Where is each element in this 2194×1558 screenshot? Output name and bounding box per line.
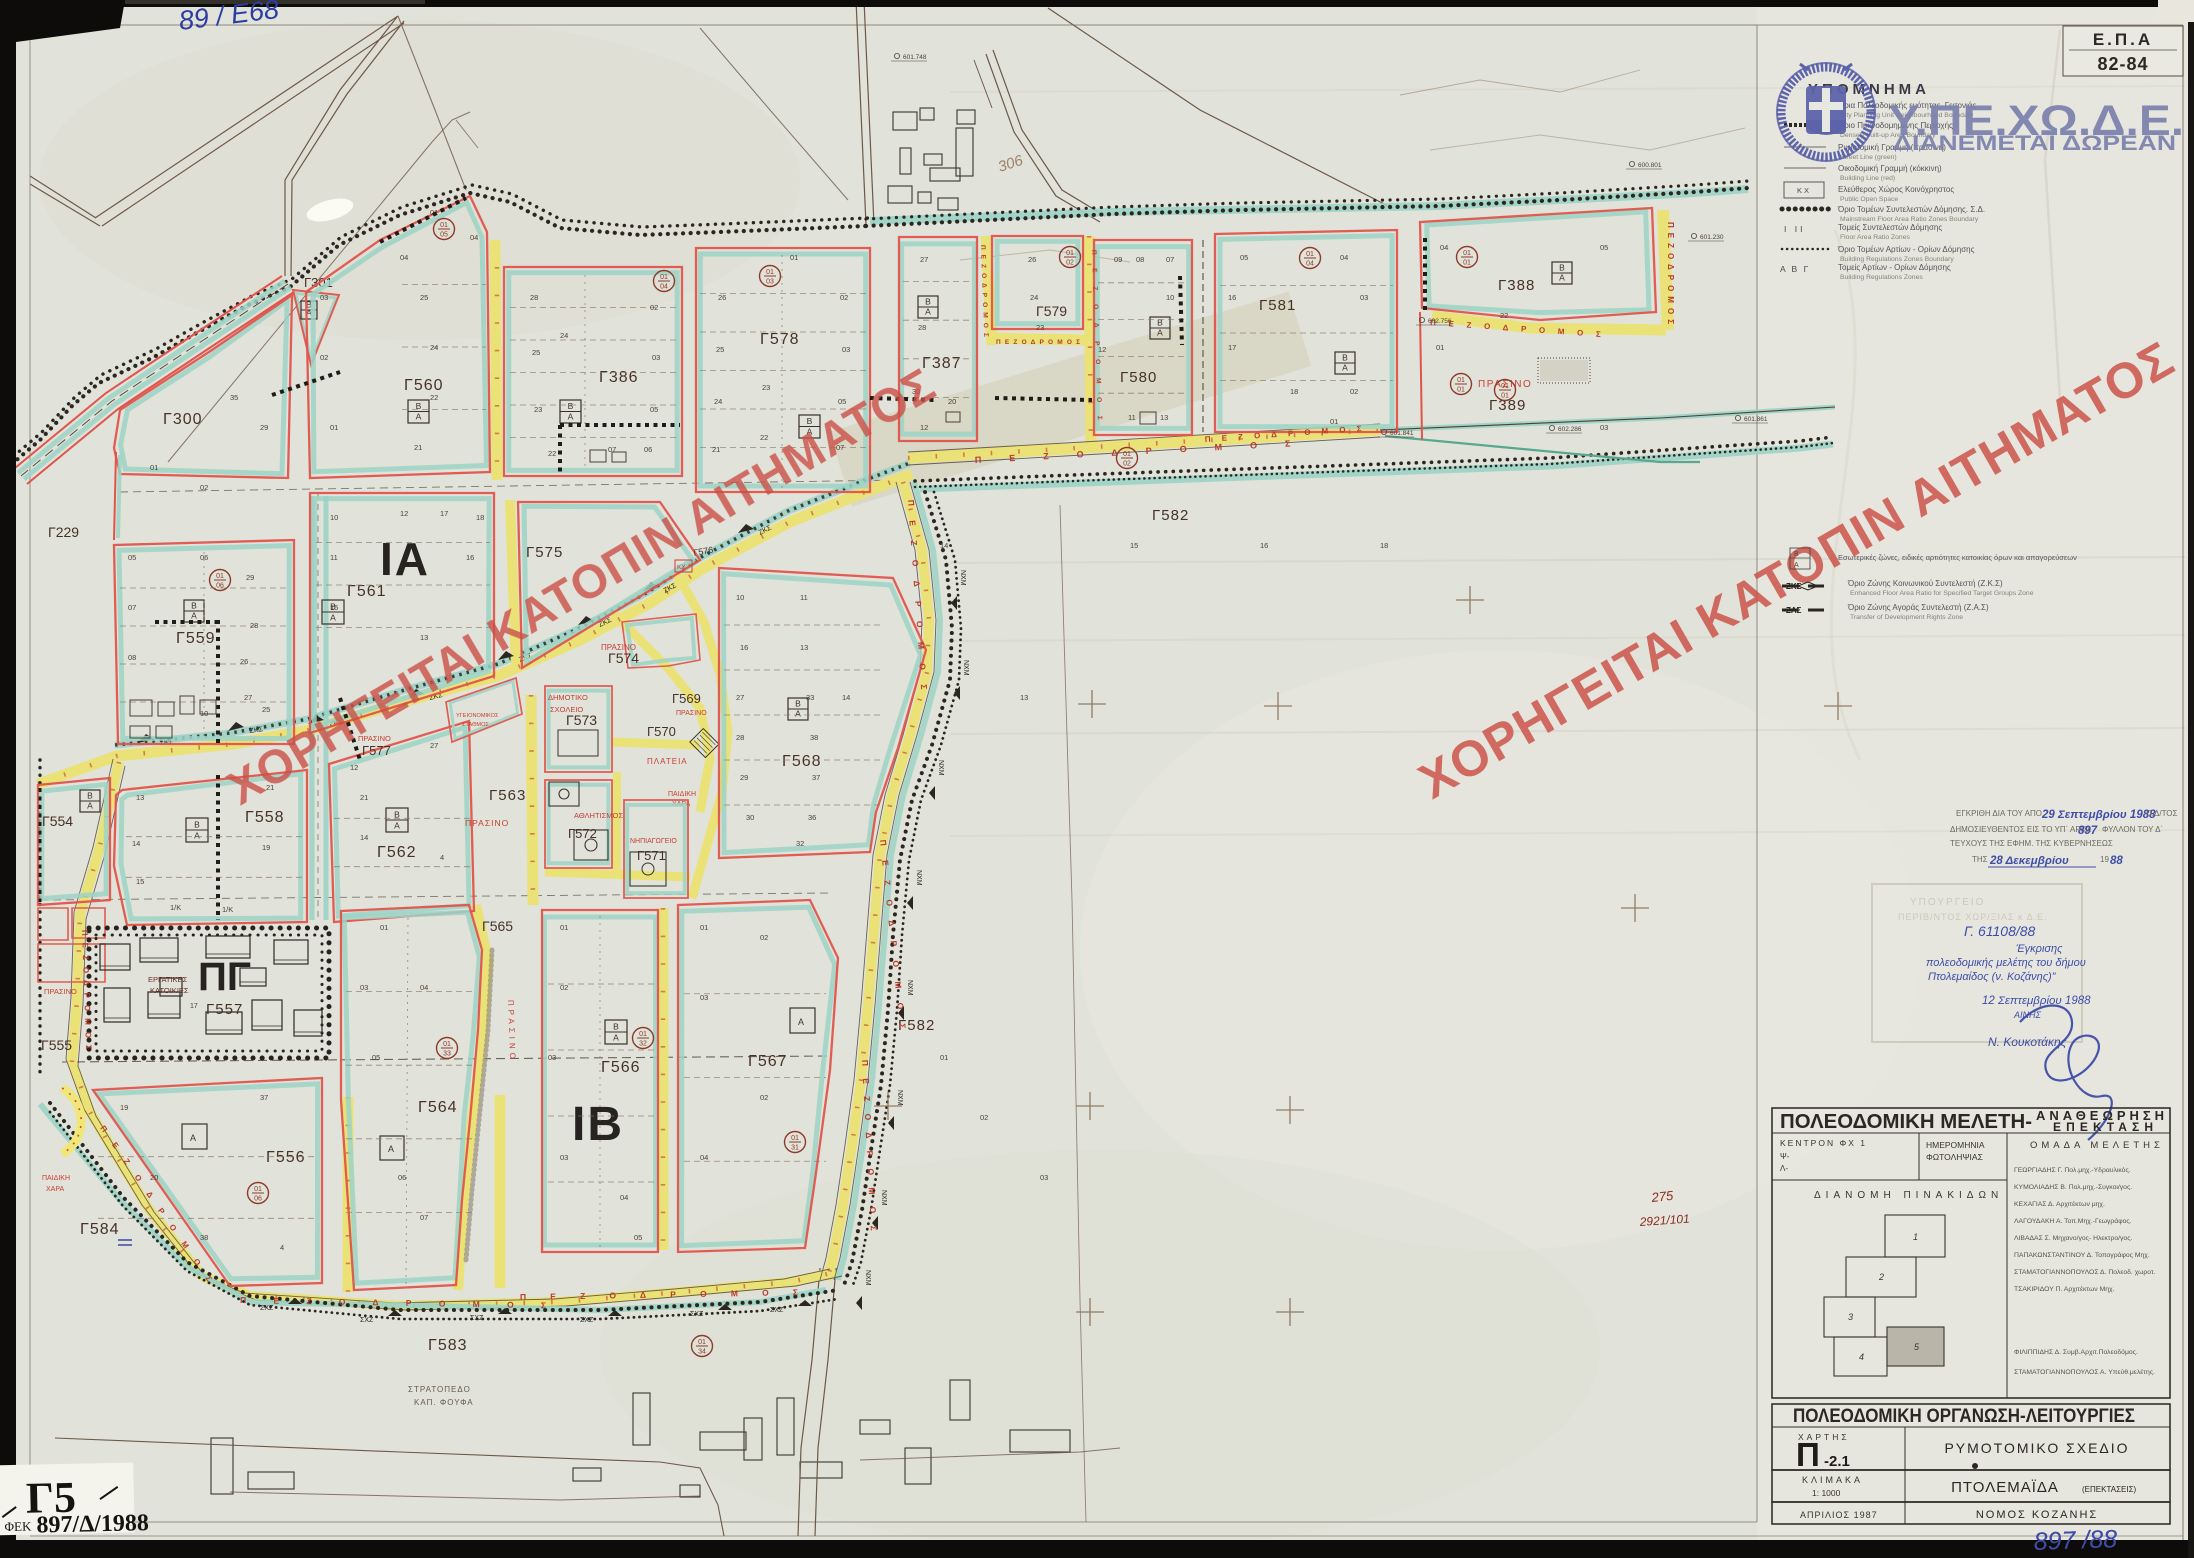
svg-text:16: 16 bbox=[740, 643, 748, 652]
svg-text:25: 25 bbox=[532, 348, 540, 357]
svg-text:ΠΟΛΕΟΔΟΜΙΚΗ ΜΕΛΕΤΗ-: ΠΟΛΕΟΔΟΜΙΚΗ ΜΕΛΕΤΗ- bbox=[1780, 1111, 2032, 1133]
svg-text:Γ584: Γ584 bbox=[80, 1221, 120, 1238]
svg-text:01: 01 bbox=[380, 923, 388, 932]
svg-text:Γ556: Γ556 bbox=[266, 1149, 306, 1166]
svg-text:Γ568: Γ568 bbox=[782, 753, 822, 770]
svg-text:04: 04 bbox=[620, 1193, 628, 1202]
svg-text:Β: Β bbox=[1157, 318, 1163, 328]
svg-text:Α: Α bbox=[795, 709, 801, 719]
svg-text:Γ567: Γ567 bbox=[748, 1053, 788, 1070]
svg-text:ΣΤΡΑΤΟΠΕΔΟ: ΣΤΡΑΤΟΠΕΔΟ bbox=[408, 1385, 471, 1394]
svg-text:ΣΧΖ: ΣΧΖ bbox=[690, 1311, 704, 1318]
svg-text:01: 01 bbox=[440, 222, 448, 229]
svg-text:04: 04 bbox=[400, 253, 408, 262]
svg-text:Γ565: Γ565 bbox=[482, 918, 513, 934]
svg-text:07: 07 bbox=[128, 603, 136, 612]
svg-text:02: 02 bbox=[980, 1113, 988, 1122]
svg-text:Γ580: Γ580 bbox=[1120, 369, 1157, 386]
svg-text:Γ578: Γ578 bbox=[760, 331, 800, 348]
svg-text:ΠΕΖΟΔΡΟΜΟΣ: ΠΕΖΟΔΡΟΜΟΣ bbox=[1666, 222, 1675, 327]
svg-text:ΔΗΜΟΣΙΕΥΘΕΝΤΟΣ ΕΙΣ ΤΟ ΥΠ΄ ΑΡΙΘ: ΔΗΜΟΣΙΕΥΘΕΝΤΟΣ ΕΙΣ ΤΟ ΥΠ΄ ΑΡΙΘ. bbox=[1950, 825, 2091, 834]
svg-text:21: 21 bbox=[360, 793, 368, 802]
svg-text:Α: Α bbox=[194, 831, 200, 841]
svg-text:Γ564: Γ564 bbox=[418, 1099, 458, 1116]
svg-text:Γ560: Γ560 bbox=[404, 377, 444, 394]
svg-text:16: 16 bbox=[1228, 293, 1236, 302]
svg-text:01: 01 bbox=[330, 423, 338, 432]
svg-text:31: 31 bbox=[791, 1145, 799, 1152]
svg-text:Β: Β bbox=[1559, 263, 1565, 273]
svg-text:02: 02 bbox=[200, 483, 208, 492]
svg-text:Γ388: Γ388 bbox=[1498, 277, 1535, 294]
svg-text:34: 34 bbox=[698, 1349, 706, 1356]
svg-text:10: 10 bbox=[330, 513, 338, 522]
svg-text:ΤΗΣ: ΤΗΣ bbox=[1972, 855, 1988, 864]
svg-text:ΣΤΑΜΑΤΟΓΙΑΝΝΟΠΟΥΛΟΣ Δ. Πολεοδ.: ΣΤΑΜΑΤΟΓΙΑΝΝΟΠΟΥΛΟΣ Δ. Πολεοδ. χωροτ. bbox=[2014, 1269, 2156, 1276]
svg-text:ΚΕΝΤΡΟΝ ΦΧ 1: ΚΕΝΤΡΟΝ ΦΧ 1 bbox=[1780, 1138, 1867, 1148]
svg-text:1/K: 1/K bbox=[170, 903, 181, 912]
svg-text:ΠΡΑΣΙΝΟ: ΠΡΑΣΙΝΟ bbox=[465, 818, 509, 828]
svg-text:ΓΕΩΡΓΙΑΔΗΣ Γ. Πολ.μηχ.-Υδραυλι: ΓΕΩΡΓΙΑΔΗΣ Γ. Πολ.μηχ.-Υδραυλικός. bbox=[2014, 1166, 2131, 1174]
svg-text:ΛΙΒΑΔΑΣ Σ. Μηχανο/γος- Ηλεκτρο: ΛΙΒΑΔΑΣ Σ. Μηχανο/γος- Ηλεκτρο/γος. bbox=[2014, 1235, 2132, 1242]
svg-text:3: 3 bbox=[1848, 1312, 1853, 1322]
svg-text:Γ582: Γ582 bbox=[1152, 507, 1189, 524]
svg-text:Α: Α bbox=[1794, 562, 1799, 569]
svg-text:17: 17 bbox=[1228, 343, 1236, 352]
svg-text:19: 19 bbox=[2100, 855, 2109, 864]
svg-text:ΝΧΜ: ΝΧΜ bbox=[962, 660, 969, 676]
svg-text:03: 03 bbox=[560, 1153, 568, 1162]
svg-text:Α: Α bbox=[190, 1133, 196, 1143]
svg-text:Γ561: Γ561 bbox=[347, 583, 387, 600]
svg-text:26: 26 bbox=[718, 293, 726, 302]
svg-text:01: 01 bbox=[1501, 383, 1509, 390]
svg-text:32: 32 bbox=[639, 1041, 647, 1048]
svg-text:03: 03 bbox=[1360, 293, 1368, 302]
svg-text:ΕΓΚΡΙΘΗ ΔΙΑ ΤΟΥ ΑΠΟ: ΕΓΚΡΙΘΗ ΔΙΑ ΤΟΥ ΑΠΟ bbox=[1956, 809, 2042, 818]
svg-text:26: 26 bbox=[1028, 255, 1036, 264]
svg-text:24: 24 bbox=[714, 397, 722, 406]
svg-text:Ν. Κουκοτάκης: Ν. Κουκοτάκης bbox=[1988, 1035, 2067, 1049]
svg-text:24: 24 bbox=[1030, 293, 1038, 302]
svg-text:Transfer of Development Rights: Transfer of Development Rights Zone bbox=[1850, 614, 1963, 621]
svg-text:11: 11 bbox=[1128, 413, 1136, 422]
svg-text:01: 01 bbox=[660, 274, 668, 281]
svg-text:03: 03 bbox=[1600, 423, 1608, 432]
svg-text:04: 04 bbox=[1340, 253, 1348, 262]
svg-text:Γ571: Γ571 bbox=[637, 848, 666, 863]
svg-text:23: 23 bbox=[534, 405, 542, 414]
svg-text:ΣΧΖ: ΣΧΖ bbox=[470, 1315, 484, 1322]
svg-text:275: 275 bbox=[1650, 1188, 1675, 1205]
svg-text:Β: Β bbox=[194, 820, 200, 830]
svg-text:Ελεύθερος Χώρος Κοινόχρηστος: Ελεύθερος Χώρος Κοινόχρηστος bbox=[1838, 185, 1954, 194]
svg-text:18: 18 bbox=[1290, 387, 1298, 396]
svg-text:29 Σεπτεμβρίου 1988: 29 Σεπτεμβρίου 1988 bbox=[2041, 809, 2156, 821]
svg-text:ΔΙΑΝΟΜΗ ΠΙΝΑΚΙΔΩΝ: ΔΙΑΝΟΜΗ ΠΙΝΑΚΙΔΩΝ bbox=[1814, 1190, 2003, 1201]
svg-text:ΠΛΑΤΕΙΑ: ΠΛΑΤΕΙΑ bbox=[647, 757, 688, 766]
svg-text:03: 03 bbox=[320, 293, 328, 302]
svg-text:28: 28 bbox=[530, 293, 538, 302]
svg-text:Γ. 61108/88: Γ. 61108/88 bbox=[1964, 923, 2036, 939]
svg-text:28: 28 bbox=[736, 733, 744, 742]
svg-text:ΠΕΖΟΔΡΟΜΟΣ: ΠΕΖΟΔΡΟΜΟΣ bbox=[996, 339, 1082, 346]
svg-text:12: 12 bbox=[1098, 345, 1106, 354]
svg-text:25: 25 bbox=[262, 705, 270, 714]
svg-text:ΝΧΜ: ΝΧΜ bbox=[864, 1270, 871, 1286]
svg-text:14: 14 bbox=[842, 693, 850, 702]
svg-text:08: 08 bbox=[128, 653, 136, 662]
svg-text:Γ554: Γ554 bbox=[42, 813, 73, 829]
svg-text:ΚΕΧΑΓΙΑΣ Δ. Αρχιτέκτων μηχ.: ΚΕΧΑΓΙΑΣ Δ. Αρχιτέκτων μηχ. bbox=[2014, 1200, 2105, 1208]
svg-text:27: 27 bbox=[736, 693, 744, 702]
svg-text:38: 38 bbox=[810, 733, 818, 742]
svg-text:ΛΑΓΟΥΔΑΚΗ Α. Τοπ.Μηχ.-Γεωγράφο: ΛΑΓΟΥΔΑΚΗ Α. Τοπ.Μηχ.-Γεωγράφος. bbox=[2014, 1217, 2132, 1225]
svg-text:11: 11 bbox=[800, 593, 808, 602]
svg-text:08: 08 bbox=[1136, 255, 1144, 264]
svg-text:38: 38 bbox=[200, 1233, 208, 1242]
svg-text:07: 07 bbox=[420, 1213, 428, 1222]
svg-text:02: 02 bbox=[560, 983, 568, 992]
svg-text:Τομείς Αρτίων - Ορίων Δόμησης: Τομείς Αρτίων - Ορίων Δόμησης bbox=[1838, 263, 1951, 272]
svg-text:Α: Α bbox=[1559, 273, 1565, 283]
svg-text:ΚΧ: ΚΧ bbox=[1797, 186, 1811, 195]
svg-text:Π.Δ/ΤΟΣ: Π.Δ/ΤΟΣ bbox=[2146, 809, 2178, 818]
svg-text:27: 27 bbox=[920, 255, 928, 264]
svg-text:ΚΑΠ. ΦΟΥΦΑ: ΚΑΠ. ΦΟΥΦΑ bbox=[414, 1398, 474, 1407]
svg-text:01: 01 bbox=[1066, 250, 1074, 257]
svg-text:Ψ-: Ψ- bbox=[1780, 1152, 1790, 1161]
svg-text:04: 04 bbox=[1306, 261, 1314, 268]
svg-text:Γ386: Γ386 bbox=[599, 369, 639, 386]
svg-text:11: 11 bbox=[330, 553, 338, 562]
svg-text:01: 01 bbox=[698, 1339, 706, 1346]
svg-text:600.801: 600.801 bbox=[1638, 162, 1662, 169]
svg-text:Όριο Ζώνης Αγοράς Συντελεστή (: Όριο Ζώνης Αγοράς Συντελεστή (Ζ.Α.Σ) bbox=[1847, 603, 1989, 612]
svg-text:33: 33 bbox=[806, 693, 814, 702]
svg-text:12 Σεπτεμβρίου 1988: 12 Σεπτεμβρίου 1988 bbox=[1982, 995, 2091, 1007]
svg-text:16: 16 bbox=[466, 553, 474, 562]
svg-text:602.286: 602.286 bbox=[1558, 426, 1582, 433]
svg-text:Α: Α bbox=[388, 1144, 394, 1154]
svg-text:Floor Area Ratio Zones: Floor Area Ratio Zones bbox=[1840, 234, 1910, 241]
svg-text:Γ581: Γ581 bbox=[1259, 297, 1296, 314]
svg-text:Β: Β bbox=[1794, 551, 1799, 558]
svg-text:601.230: 601.230 bbox=[1700, 234, 1724, 241]
svg-text:ΚΥΜΟΛΙΑΔΗΣ Β. Πολ.μηχ.-Συγκοι/: ΚΥΜΟΛΙΑΔΗΣ Β. Πολ.μηχ.-Συγκοι/γος. bbox=[2014, 1184, 2132, 1191]
svg-text:Ε.Π.Α: Ε.Π.Α bbox=[2093, 30, 2153, 49]
svg-text:37: 37 bbox=[812, 773, 820, 782]
svg-text:06: 06 bbox=[398, 1173, 406, 1182]
svg-text:13: 13 bbox=[136, 793, 144, 802]
svg-text:Public Open Space: Public Open Space bbox=[1840, 196, 1898, 203]
svg-text:Τομείς Συντελεστών Δόμησης: Τομείς Συντελεστών Δόμησης bbox=[1838, 223, 1942, 232]
svg-text:ΝΧΜ: ΝΧΜ bbox=[896, 1090, 903, 1106]
svg-text:Γ300: Γ300 bbox=[163, 411, 203, 428]
svg-text:12: 12 bbox=[920, 423, 928, 432]
svg-text:1: 1000: 1: 1000 bbox=[1812, 1488, 1841, 1498]
svg-text:01: 01 bbox=[791, 1135, 799, 1142]
svg-text:01: 01 bbox=[1463, 260, 1471, 267]
svg-text:04: 04 bbox=[1440, 243, 1448, 252]
svg-text:02: 02 bbox=[650, 303, 658, 312]
svg-text:ΔΗΜΟΤΙΚΟ: ΔΗΜΟΤΙΚΟ bbox=[548, 693, 588, 702]
svg-text:Α: Α bbox=[191, 611, 197, 621]
svg-text:Α Β Γ: Α Β Γ bbox=[1780, 264, 1810, 274]
svg-text:ΖΚΣ: ΖΚΣ bbox=[1786, 582, 1802, 591]
svg-text:05: 05 bbox=[128, 553, 136, 562]
svg-text:ΝΟΜΟΣ ΚΟΖΑΝΗΣ: ΝΟΜΟΣ ΚΟΖΑΝΗΣ bbox=[1976, 1509, 2098, 1521]
svg-text:Α: Α bbox=[568, 412, 574, 422]
svg-text:01: 01 bbox=[700, 923, 708, 932]
svg-text:23: 23 bbox=[762, 383, 770, 392]
svg-text:03: 03 bbox=[360, 983, 368, 992]
svg-text:15: 15 bbox=[1130, 541, 1138, 550]
svg-text:Έγκρισης: Έγκρισης bbox=[2016, 943, 2063, 955]
svg-text:05: 05 bbox=[440, 232, 448, 239]
svg-text:12: 12 bbox=[400, 509, 408, 518]
svg-text:33: 33 bbox=[443, 1051, 451, 1058]
svg-text:Εσωτερικές ζώνες, ειδικές αρτι: Εσωτερικές ζώνες, ειδικές αρτιότητες κατ… bbox=[1838, 553, 2077, 562]
svg-text:27: 27 bbox=[430, 741, 438, 750]
svg-text:ΖΑΣ: ΖΑΣ bbox=[1786, 606, 1802, 615]
svg-text:19: 19 bbox=[262, 843, 270, 852]
svg-text:28: 28 bbox=[250, 621, 258, 630]
svg-text:Όριο Ζώνης Κοινωνικού Συντελεσ: Όριο Ζώνης Κοινωνικού Συντελεστή (Ζ.Κ.Σ) bbox=[1847, 579, 2003, 588]
svg-text:2: 2 bbox=[1878, 1272, 1884, 1282]
svg-text:09: 09 bbox=[1114, 255, 1122, 264]
svg-text:ΚΑΤΟΙΚΙΕΣ: ΚΑΤΟΙΚΙΕΣ bbox=[150, 986, 189, 995]
svg-text:ΝΧΜ: ΝΧΜ bbox=[880, 1190, 887, 1206]
svg-text:88: 88 bbox=[2110, 855, 2123, 867]
svg-text:02: 02 bbox=[1350, 387, 1358, 396]
svg-text:02: 02 bbox=[840, 293, 848, 302]
svg-text:4: 4 bbox=[280, 1243, 284, 1252]
svg-text:ΝΧΜ: ΝΧΜ bbox=[915, 870, 922, 886]
svg-text:18: 18 bbox=[476, 513, 484, 522]
svg-text:Β: Β bbox=[1342, 353, 1348, 363]
svg-text:02: 02 bbox=[320, 353, 328, 362]
svg-text:Γ577: Γ577 bbox=[362, 743, 391, 758]
svg-text:15: 15 bbox=[136, 877, 144, 886]
svg-text:01: 01 bbox=[1457, 387, 1465, 394]
svg-text:17: 17 bbox=[190, 1003, 198, 1010]
svg-text:Β: Β bbox=[925, 297, 931, 307]
svg-text:01: 01 bbox=[940, 1053, 948, 1062]
svg-text:12: 12 bbox=[350, 763, 358, 772]
svg-text:ΙΑ: ΙΑ bbox=[380, 533, 430, 585]
svg-text:Γ572: Γ572 bbox=[568, 826, 597, 841]
svg-text:02: 02 bbox=[760, 1093, 768, 1102]
svg-text:Γ566: Γ566 bbox=[601, 1059, 641, 1076]
svg-text:20: 20 bbox=[150, 1173, 158, 1182]
svg-text:Ι ΙΙ: Ι ΙΙ bbox=[1784, 224, 1805, 234]
svg-text:ΚΧ: ΚΧ bbox=[677, 564, 686, 571]
svg-text:01: 01 bbox=[1463, 250, 1471, 257]
svg-text:Β: Β bbox=[613, 1022, 619, 1032]
svg-text:28: 28 bbox=[918, 323, 926, 332]
svg-text:ΠΓ: ΠΓ bbox=[198, 955, 251, 999]
svg-text:04: 04 bbox=[470, 233, 478, 242]
svg-text:04: 04 bbox=[420, 983, 428, 992]
svg-text:10: 10 bbox=[1166, 293, 1174, 302]
svg-text:Α: Α bbox=[87, 801, 93, 811]
svg-text:ΤΣΑΚΙΡΙΔΟΥ Π. Αρχιτέκτων Μηχ.: ΤΣΑΚΙΡΙΔΟΥ Π. Αρχιτέκτων Μηχ. bbox=[2014, 1285, 2115, 1293]
svg-text:03: 03 bbox=[652, 353, 660, 362]
svg-text:Α: Α bbox=[1342, 363, 1348, 373]
svg-text:ΤΕΥΧΟΥΣ ΤΗΣ ΕΦΗΜ. ΤΗΣ ΚΥΒΕΡΝΗΣ: ΤΕΥΧΟΥΣ ΤΗΣ ΕΦΗΜ. ΤΗΣ ΚΥΒΕΡΝΗΣΕΩΣ bbox=[1950, 839, 2113, 848]
svg-text:Γ555: Γ555 bbox=[41, 1037, 72, 1053]
svg-text:01: 01 bbox=[560, 923, 568, 932]
svg-text:01: 01 bbox=[1501, 393, 1509, 400]
svg-text:20: 20 bbox=[948, 397, 956, 406]
svg-text:19: 19 bbox=[120, 1103, 128, 1112]
svg-text:06: 06 bbox=[254, 1196, 262, 1203]
svg-text:05: 05 bbox=[650, 405, 658, 414]
svg-text:4: 4 bbox=[440, 853, 444, 862]
svg-text:(ΕΠΕΚΤΑΣΕΙΣ): (ΕΠΕΚΤΑΣΕΙΣ) bbox=[2082, 1485, 2137, 1494]
svg-text:Όριο Τομέων Αρτίων - Ορίων Δόμ: Όριο Τομέων Αρτίων - Ορίων Δόμησης bbox=[1837, 245, 1975, 254]
svg-text:05: 05 bbox=[1600, 243, 1608, 252]
svg-text:37: 37 bbox=[260, 1093, 268, 1102]
svg-text:25: 25 bbox=[420, 293, 428, 302]
svg-text:ΑΘΛΗΤΙΣΜΟΣ: ΑΘΛΗΤΙΣΜΟΣ bbox=[574, 811, 623, 820]
svg-text:05: 05 bbox=[372, 1053, 380, 1062]
svg-text:ΠΡΑΣΙΝΟ: ΠΡΑΣΙΝΟ bbox=[44, 987, 77, 996]
svg-text:897: 897 bbox=[2078, 825, 2098, 837]
svg-text:06: 06 bbox=[200, 553, 208, 562]
svg-text:ΙΒ: ΙΒ bbox=[572, 1098, 624, 1151]
svg-text:Β: Β bbox=[87, 791, 93, 801]
svg-text:ΥΓΕΙΟΝΟΜΙΚΟΣ: ΥΓΕΙΟΝΟΜΙΚΟΣ bbox=[456, 713, 499, 719]
svg-text:ΝΧΜ: ΝΧΜ bbox=[959, 570, 966, 586]
svg-text:Γ579: Γ579 bbox=[1036, 303, 1067, 319]
svg-text:04: 04 bbox=[700, 1153, 708, 1162]
svg-text:897 /88: 897 /88 bbox=[2033, 1525, 2117, 1556]
svg-text:03: 03 bbox=[700, 993, 708, 1002]
svg-text:ΣΧΖ: ΣΧΖ bbox=[260, 1305, 274, 1312]
svg-text:29: 29 bbox=[740, 773, 748, 782]
svg-text:13: 13 bbox=[1020, 693, 1028, 702]
svg-text:ΝΧΜ: ΝΧΜ bbox=[906, 980, 913, 996]
svg-text:06: 06 bbox=[644, 445, 652, 454]
svg-text:16: 16 bbox=[1260, 541, 1268, 550]
svg-text:05: 05 bbox=[634, 1233, 642, 1242]
svg-text:14: 14 bbox=[940, 541, 948, 550]
svg-text:29: 29 bbox=[260, 423, 268, 432]
svg-text:ΟΜΑΔΑ ΜΕΛΕΤΗΣ: ΟΜΑΔΑ ΜΕΛΕΤΗΣ bbox=[2030, 1140, 2164, 1151]
svg-text:Α: Α bbox=[1157, 328, 1163, 338]
svg-text:602.756: 602.756 bbox=[1428, 318, 1452, 325]
svg-text:Γ387: Γ387 bbox=[922, 355, 962, 372]
svg-text:Γ570: Γ570 bbox=[647, 724, 676, 739]
svg-text:ΣΤΑΘΜΟΣ: ΣΤΑΘΜΟΣ bbox=[462, 722, 489, 728]
svg-text:Γ563: Γ563 bbox=[489, 787, 526, 804]
svg-text:82-84: 82-84 bbox=[2097, 54, 2148, 74]
svg-text:13: 13 bbox=[1160, 413, 1168, 422]
svg-text:ΧΑΡΑ: ΧΑΡΑ bbox=[46, 1186, 64, 1193]
svg-text:1: 1 bbox=[1913, 1232, 1918, 1242]
svg-text:601.841: 601.841 bbox=[1390, 430, 1414, 437]
svg-text:30: 30 bbox=[746, 813, 754, 822]
svg-text:ΥΠΟΥΡΓΕΙΟ: ΥΠΟΥΡΓΕΙΟ bbox=[1910, 897, 1985, 908]
svg-text:ΔΙΑΝΕΜΕΤΑΙ ΔΩΡΕΑΝ: ΔΙΑΝΕΜΕΤΑΙ ΔΩΡΕΑΝ bbox=[1893, 132, 2176, 155]
svg-text:4: 4 bbox=[1859, 1352, 1864, 1362]
svg-text:01: 01 bbox=[639, 1031, 647, 1038]
svg-text:ΑΠΡΙΛΙΟΣ 1987: ΑΠΡΙΛΙΟΣ 1987 bbox=[1800, 1510, 1878, 1520]
svg-text:Α: Α bbox=[613, 1033, 619, 1043]
svg-text:Γ583: Γ583 bbox=[428, 1337, 468, 1354]
svg-text:27: 27 bbox=[244, 693, 252, 702]
svg-text:01: 01 bbox=[1330, 417, 1338, 426]
svg-text:04: 04 bbox=[660, 284, 668, 291]
svg-text:01: 01 bbox=[790, 253, 798, 262]
svg-text:Β: Β bbox=[795, 699, 801, 709]
svg-text:Γ557: Γ557 bbox=[206, 1001, 243, 1018]
svg-text:Α: Α bbox=[330, 613, 336, 623]
svg-text:ΣΧΖ: ΣΧΖ bbox=[770, 1307, 784, 1314]
svg-text:ΠΤΟΛΕΜΑΪΔΑ: ΠΤΟΛΕΜΑΪΔΑ bbox=[1951, 1479, 2059, 1496]
svg-text:ΚΛΙΜΑΚΑ: ΚΛΙΜΑΚΑ bbox=[1802, 1475, 1863, 1485]
svg-text:05: 05 bbox=[1240, 253, 1248, 262]
svg-text:ΦΩΤΟΛΗΨΙΑΣ: ΦΩΤΟΛΗΨΙΑΣ bbox=[1926, 1152, 1983, 1162]
svg-text:ΠΡΑΣΙΝΟ: ΠΡΑΣΙΝΟ bbox=[676, 710, 707, 717]
svg-text:21: 21 bbox=[414, 443, 422, 452]
svg-text:03: 03 bbox=[766, 279, 774, 286]
svg-text:29: 29 bbox=[246, 573, 254, 582]
svg-text:36: 36 bbox=[808, 813, 816, 822]
svg-text:Α: Α bbox=[925, 307, 931, 317]
svg-text:Πτολεμαίδος (ν. Κοζάνης)”: Πτολεμαίδος (ν. Κοζάνης)” bbox=[1928, 971, 2057, 983]
svg-text:22: 22 bbox=[1500, 311, 1508, 320]
svg-text:06: 06 bbox=[216, 583, 224, 590]
svg-text:02: 02 bbox=[1123, 461, 1131, 468]
svg-text:10: 10 bbox=[736, 593, 744, 602]
svg-text:03: 03 bbox=[548, 1053, 556, 1062]
svg-text:Π: Π bbox=[1796, 1436, 1820, 1473]
svg-text:01: 01 bbox=[216, 573, 224, 580]
svg-text:22: 22 bbox=[430, 393, 438, 402]
svg-text:897/Δ/1988: 897/Δ/1988 bbox=[36, 1510, 149, 1538]
svg-text:601.861: 601.861 bbox=[1744, 416, 1768, 423]
svg-text:Building Regulations Zones: Building Regulations Zones bbox=[1840, 274, 1923, 281]
svg-text:07: 07 bbox=[1166, 255, 1174, 264]
svg-text:Όριο Τομέων Συντελεστών Δόμηση: Όριο Τομέων Συντελεστών Δόμησης. Σ.Δ. bbox=[1837, 205, 1985, 214]
svg-text:Building Regulations Zones Bou: Building Regulations Zones Boundary bbox=[1840, 256, 1954, 263]
svg-text:ΠΑΙΔΙΚΗ: ΠΑΙΔΙΚΗ bbox=[42, 1175, 70, 1182]
svg-text:Enhanced Floor Area Ratio for: Enhanced Floor Area Ratio for Specified … bbox=[1850, 590, 2034, 597]
svg-text:ΡΥΜΟΤΟΜΙΚΟ ΣΧΕΔΙΟ: ΡΥΜΟΤΟΜΙΚΟ ΣΧΕΔΙΟ bbox=[1944, 1440, 2129, 1456]
svg-text:Λ-: Λ- bbox=[1780, 1164, 1788, 1173]
svg-text:18: 18 bbox=[1380, 541, 1388, 550]
svg-text:ΕΡΓΑΤΙΚΕΣ: ΕΡΓΑΤΙΚΕΣ bbox=[148, 975, 188, 984]
svg-text:ΠΑΠΑΚΩΝΣΤΑΝΤΙΝΟΥ Δ. Τοπογράφος: ΠΑΠΑΚΩΝΣΤΑΝΤΙΝΟΥ Δ. Τοπογράφος Μηχ. bbox=[2014, 1251, 2150, 1259]
svg-text:ΣΧΖ: ΣΧΖ bbox=[580, 1317, 594, 1324]
svg-text:01: 01 bbox=[1306, 251, 1314, 258]
svg-text:01: 01 bbox=[1436, 343, 1444, 352]
svg-text:ΠΑΙΔΙΚΗ: ΠΑΙΔΙΚΗ bbox=[668, 791, 696, 798]
svg-text:ΣΤΑΜΑΤΟΓΙΑΝΝΟΠΟΥΛΟΣ Α. Υπεύθ.μ: ΣΤΑΜΑΤΟΓΙΑΝΝΟΠΟΥΛΟΣ Α. Υπεύθ.μελέτης. bbox=[2014, 1368, 2155, 1376]
svg-text:-2.1: -2.1 bbox=[1824, 1453, 1850, 1470]
svg-text:01: 01 bbox=[150, 463, 158, 472]
svg-text:ΦΥΛΛΟΝ ΤΟΥ Δ΄: ΦΥΛΛΟΝ ΤΟΥ Δ΄ bbox=[2102, 825, 2163, 834]
svg-text:14: 14 bbox=[132, 839, 140, 848]
svg-text:02: 02 bbox=[760, 933, 768, 942]
svg-text:Γ575: Γ575 bbox=[526, 544, 563, 561]
svg-text:17: 17 bbox=[440, 509, 448, 518]
svg-text:601.748: 601.748 bbox=[903, 54, 927, 61]
svg-text:15: 15 bbox=[330, 603, 338, 612]
